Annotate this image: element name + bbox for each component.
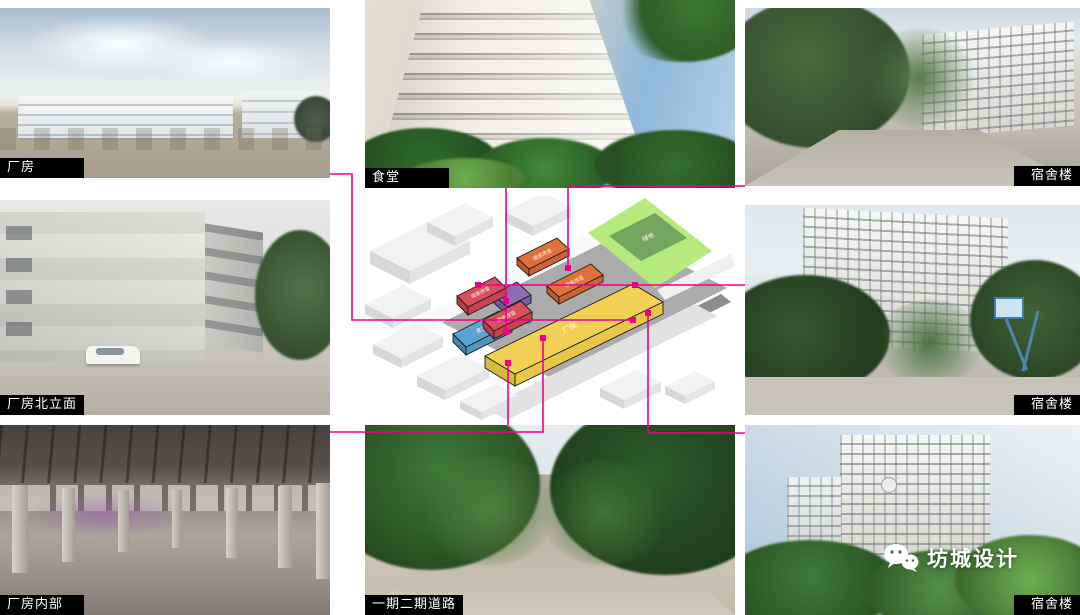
car <box>86 346 140 364</box>
photo-dorm-top: 宿舍楼 <box>745 8 1080 186</box>
axonometric-diagram: 绿地 厂房 食堂 <box>365 196 735 420</box>
photo-dorm-bottom: 坊城设计 宿舍楼 <box>745 425 1080 615</box>
trees <box>865 28 975 128</box>
ceiling-joists <box>0 425 330 483</box>
column <box>278 486 292 568</box>
photo-dorm-mid: 宿舍楼 <box>745 205 1080 415</box>
photo-canteen: 食堂 <box>365 0 735 188</box>
purple-light <box>25 493 185 537</box>
photo-factory: 厂房 <box>0 8 330 178</box>
wall-windows <box>6 226 32 354</box>
site-diagram: 绿地 厂房 食堂 <box>365 196 735 420</box>
photo-label-dorm-top: 宿舍楼 <box>1014 166 1080 186</box>
watermark-brand: 坊城设计 <box>927 543 1019 573</box>
column <box>12 485 28 573</box>
photo-label-factory-north: 厂房北立面 <box>0 395 84 415</box>
trees-left <box>425 455 555 565</box>
trees <box>875 300 985 385</box>
photo-label-road: 一期二期道路 <box>365 595 463 615</box>
wechat-icon <box>883 543 919 573</box>
photo-label-dorm-mid: 宿舍楼 <box>1014 395 1080 415</box>
photo-factory-interior: 厂房内部 <box>0 425 330 615</box>
column <box>62 488 75 562</box>
photo-label-factory-interior: 厂房内部 <box>0 595 84 615</box>
watermark: 坊城设计 <box>883 543 1019 573</box>
photo-factory-north: 厂房北立面 <box>0 200 330 415</box>
presentation-board: 厂房 食堂 宿舍楼 厂房北立面 <box>0 0 1080 615</box>
basketball-backboard <box>994 297 1024 319</box>
trees-right <box>540 460 670 565</box>
dorm-tower <box>840 435 990 555</box>
photo-label-factory: 厂房 <box>0 158 84 178</box>
car-window <box>96 348 124 355</box>
scrub-ground <box>0 128 330 150</box>
photo-label-dorm-bottom: 宿舍楼 <box>1014 595 1080 615</box>
column <box>118 490 129 552</box>
photo-label-canteen: 食堂 <box>365 168 449 188</box>
photo-road: 一期二期道路 <box>365 425 735 615</box>
facade-badge <box>881 477 897 493</box>
column <box>172 490 182 548</box>
cloud <box>150 38 310 86</box>
column <box>316 483 330 579</box>
column <box>226 488 238 558</box>
